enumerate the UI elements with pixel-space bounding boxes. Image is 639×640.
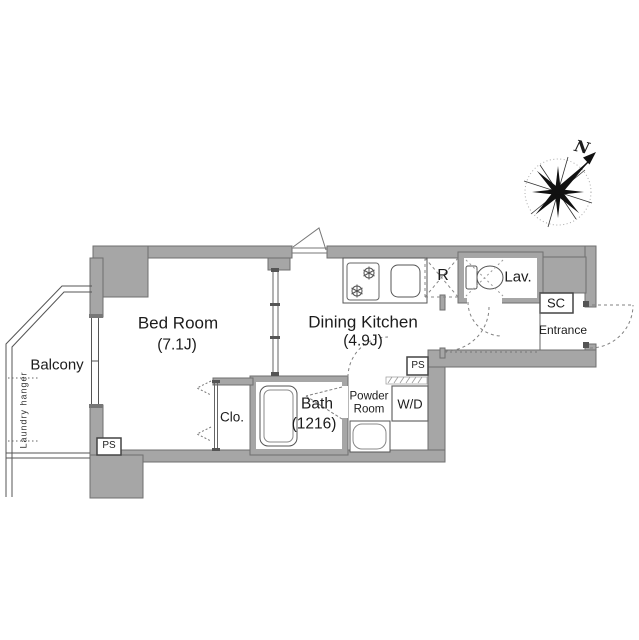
pipe-shaft-kitchen-label: PS xyxy=(411,361,424,371)
pipe-shaft-bedroom-label: PS xyxy=(102,441,115,451)
entrance-label: Entrance xyxy=(539,324,587,336)
vanity-bowl xyxy=(353,424,386,449)
powder-room-label-1: Powder xyxy=(350,391,389,403)
door-hinge xyxy=(583,342,589,348)
laundry-hanger-label: Laundry hanger xyxy=(20,371,29,448)
bedroom-size-label: (7.1J) xyxy=(157,337,197,353)
bath-label: Bath xyxy=(301,396,333,412)
washer-dryer-label: W/D xyxy=(397,398,422,411)
floor-plan: Bed Room (7.1J) Dining Kitchen (4.9J) Ba… xyxy=(0,0,639,640)
dining-kitchen-label: Dining Kitchen xyxy=(308,314,418,331)
bedroom-label: Bed Room xyxy=(138,315,218,332)
door-hinge xyxy=(583,301,589,307)
balcony-label: Balcony xyxy=(30,358,83,373)
dining-kitchen-size-label: (4.9J) xyxy=(343,333,383,349)
sliding-partition xyxy=(270,268,280,376)
lavatory-label: Lav. xyxy=(504,270,531,285)
lavatory-door-arc xyxy=(468,302,502,336)
bath-size-label: (1216) xyxy=(292,416,337,432)
kitchen-window xyxy=(292,228,327,253)
shoe-closet-label: SC xyxy=(547,297,565,310)
hall-door-arc xyxy=(445,307,489,351)
kitchen-counter xyxy=(343,258,427,303)
refrigerator-label: R xyxy=(437,268,449,284)
kitchen-sink xyxy=(391,265,420,297)
entrance-door-arc xyxy=(590,305,633,348)
closet-door xyxy=(197,380,220,451)
bedroom-window xyxy=(90,317,103,405)
accordion-door-hatch xyxy=(386,377,427,384)
closet-label: Clo. xyxy=(220,410,244,424)
powder-room-label-2: Room xyxy=(354,404,385,416)
compass-rose xyxy=(524,152,596,227)
